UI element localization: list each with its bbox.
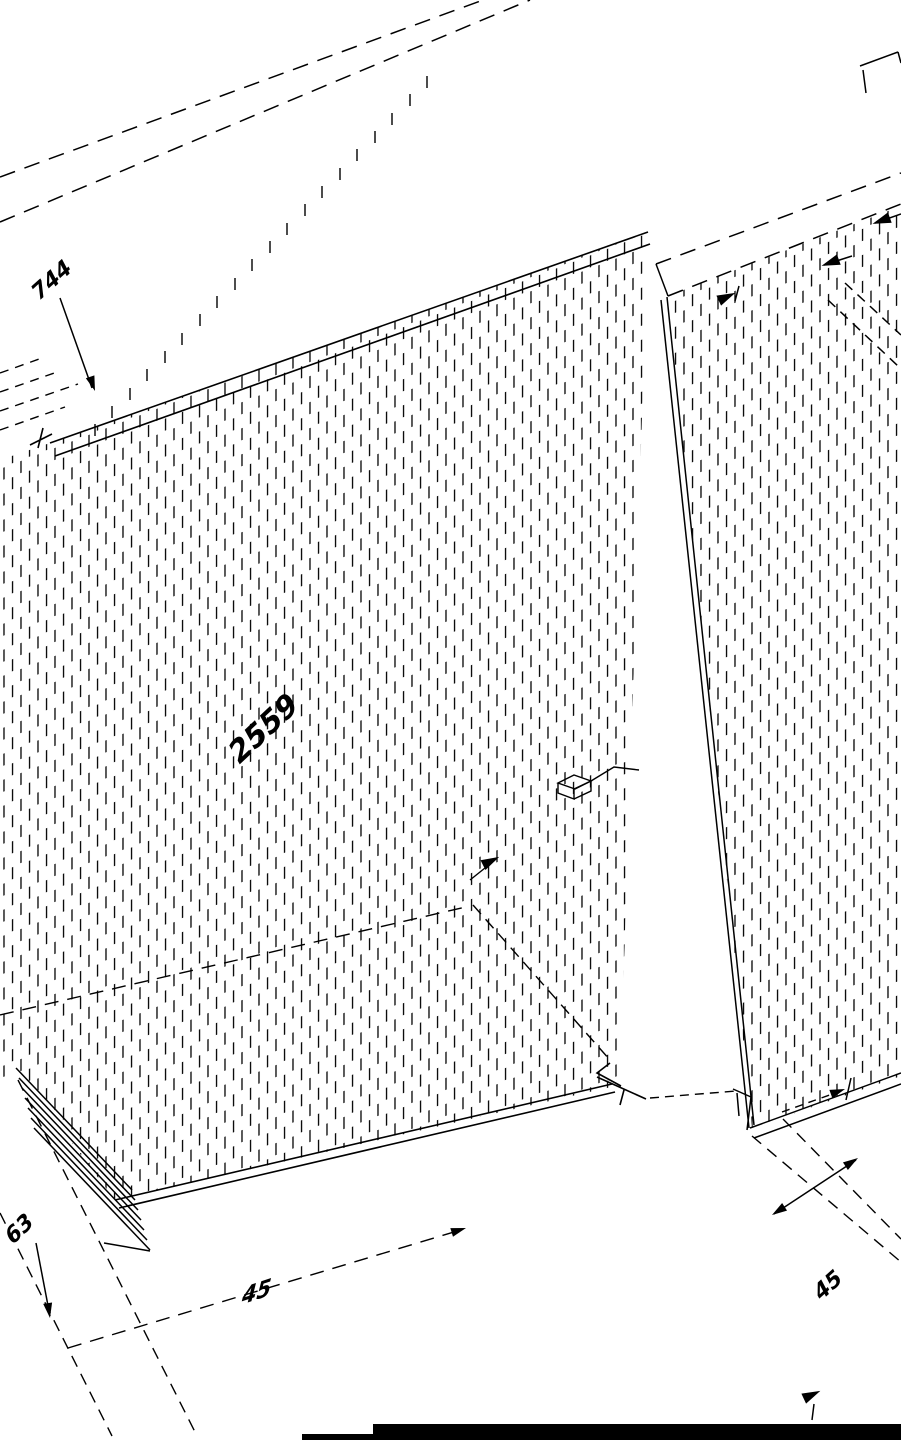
cad-drawing-page: 744 2559 63 45 45 xyxy=(0,0,901,1440)
cad-drawing-canvas: 744 2559 63 45 45 xyxy=(0,0,901,1440)
bottom-black-bar xyxy=(302,1424,901,1440)
